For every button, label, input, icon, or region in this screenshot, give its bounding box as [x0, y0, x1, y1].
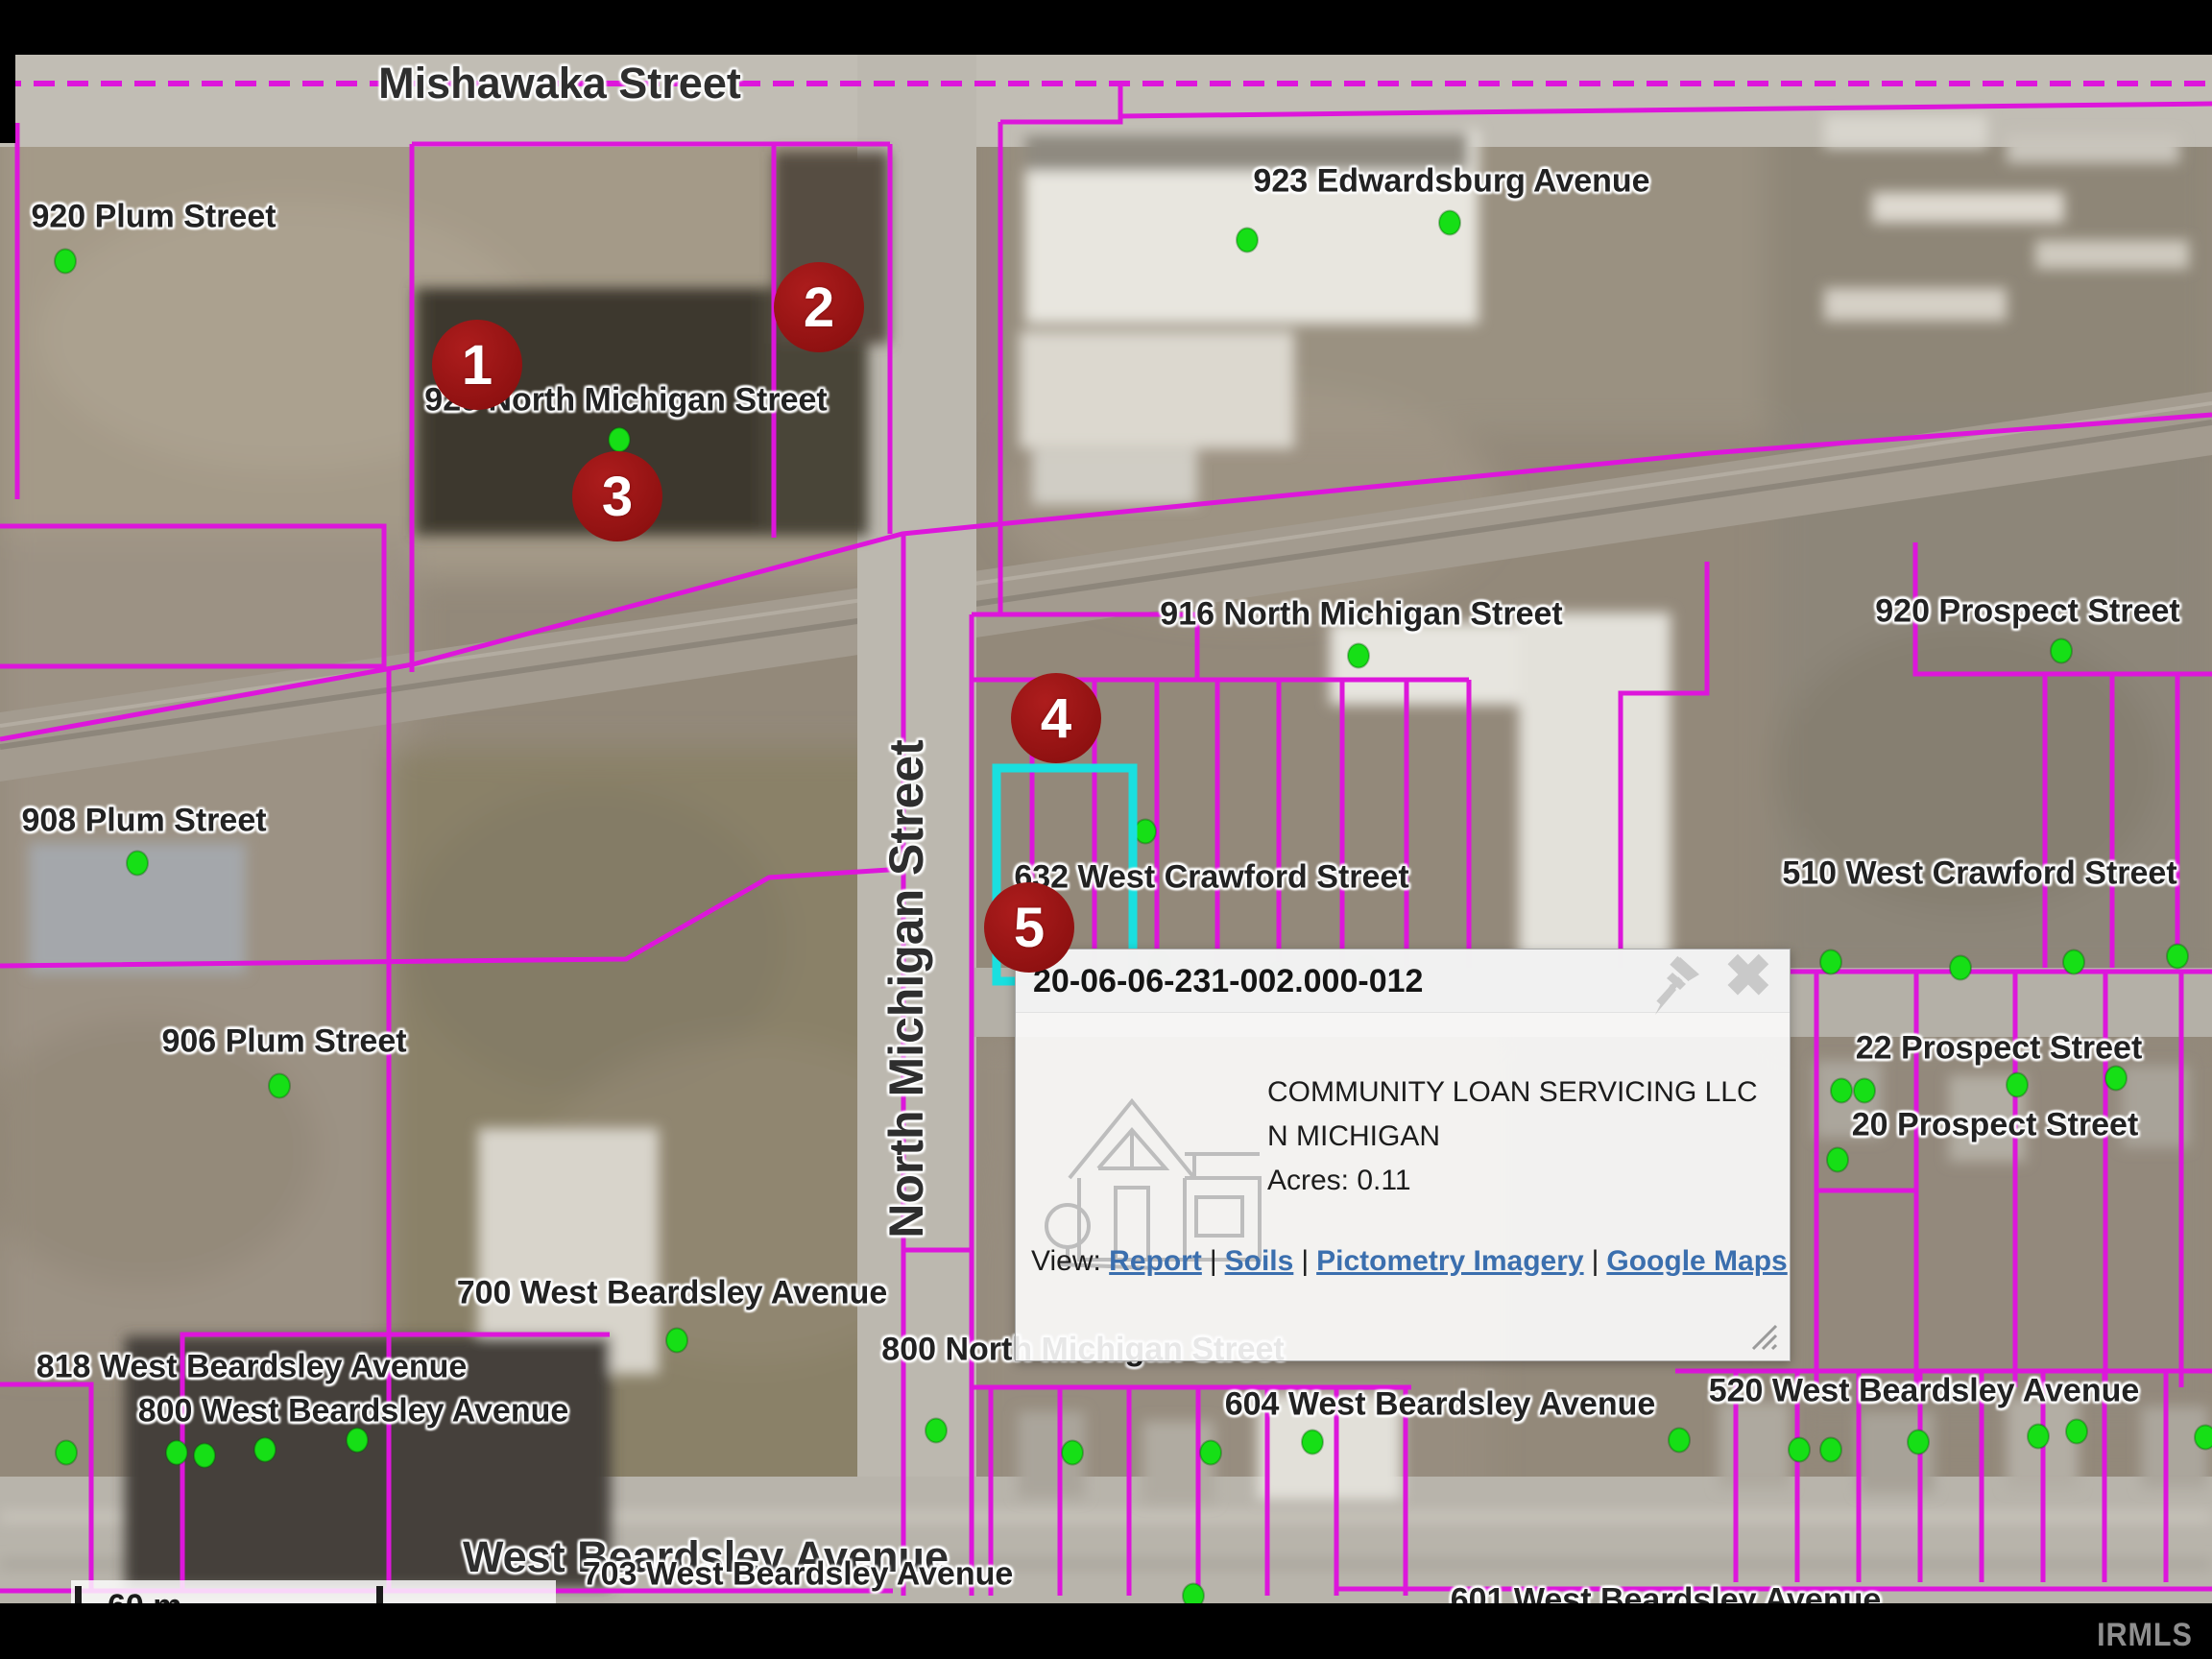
popup-link-pictometry-imagery[interactable]: Pictometry Imagery — [1316, 1245, 1583, 1277]
map-marker-5[interactable]: 5 — [984, 882, 1074, 973]
parcel-point — [1789, 1438, 1810, 1462]
parcel-point — [1348, 644, 1369, 668]
parcel-point — [254, 1438, 276, 1462]
link-separator: | — [1293, 1245, 1316, 1277]
bottom-letterbox-bar — [0, 1603, 2212, 1659]
parcel-point — [269, 1074, 290, 1098]
parcel-point — [1831, 1079, 1852, 1103]
aerial-map-canvas[interactable] — [0, 0, 2212, 1659]
parcel-point — [1439, 211, 1460, 235]
parcel-point — [666, 1329, 687, 1353]
popup-link-google-maps[interactable]: Google Maps — [1606, 1245, 1787, 1277]
top-letterbox-bar — [0, 0, 2212, 55]
parcel-address: N MICHIGAN — [1267, 1115, 1758, 1159]
parcel-point — [1200, 1441, 1221, 1465]
left-letterbox-tab — [0, 55, 15, 143]
close-icon[interactable]: ✖ — [1724, 946, 1772, 1007]
map-marker-1[interactable]: 1 — [432, 320, 522, 410]
map-marker-2[interactable]: 2 — [774, 262, 864, 352]
parcel-point — [1062, 1441, 1083, 1465]
parcel-point — [1237, 228, 1258, 252]
view-label: View: — [1031, 1245, 1101, 1277]
pin-icon[interactable] — [1651, 955, 1701, 1017]
popup-link-report[interactable]: Report — [1109, 1245, 1202, 1277]
link-separator: | — [1584, 1245, 1607, 1277]
owner-name: COMMUNITY LOAN SERVICING LLC — [1267, 1070, 1758, 1115]
parcel-point — [1950, 956, 1971, 980]
parcel-point — [1908, 1431, 1929, 1455]
parcel-point — [347, 1429, 368, 1453]
parcel-details: COMMUNITY LOAN SERVICING LLC N MICHIGAN … — [1267, 1070, 1758, 1203]
parcel-point — [194, 1444, 215, 1468]
parcel-point — [2051, 639, 2072, 663]
popup-links-row: View: Report|Soils|Pictometry Imagery|Go… — [1031, 1245, 1788, 1278]
parcel-id-title: 20-06-06-231-002.000-012 — [1033, 950, 1423, 1013]
popup-header: 20-06-06-231-002.000-012 ✖ — [1016, 950, 1790, 1013]
parcel-point — [166, 1441, 187, 1465]
parcel-point — [56, 1441, 77, 1465]
parcel-point — [1827, 1148, 1848, 1172]
parcel-info-popup: 20-06-06-231-002.000-012 ✖ — [1015, 949, 1791, 1361]
map-marker-3[interactable]: 3 — [572, 451, 662, 541]
parcel-point — [2195, 1426, 2212, 1450]
map-viewport[interactable]: Mishawaka StreetWest Beardsley AvenueNor… — [0, 0, 2212, 1659]
parcel-acres: Acres: 0.11 — [1267, 1159, 1758, 1203]
link-separator: | — [1202, 1245, 1225, 1277]
parcel-point — [2066, 1420, 2087, 1444]
parcel-point — [1820, 950, 1841, 974]
irmls-watermark: IRMLS — [2097, 1617, 2193, 1654]
parcel-point — [2105, 1067, 2127, 1091]
parcel-point — [2007, 1073, 2028, 1097]
parcel-point — [1854, 1079, 1875, 1103]
parcel-point — [1135, 820, 1156, 844]
parcel-point — [1302, 1431, 1323, 1455]
parcel-point — [2063, 950, 2084, 974]
map-marker-4[interactable]: 4 — [1011, 673, 1101, 763]
parcel-point — [55, 250, 76, 274]
parcel-point — [127, 852, 148, 876]
parcel-point — [1669, 1429, 1690, 1453]
parcel-point — [2167, 945, 2188, 969]
resize-handle-icon[interactable] — [1747, 1320, 1780, 1353]
house-icon — [1041, 1063, 1273, 1272]
parcel-point — [926, 1419, 947, 1443]
popup-link-soils[interactable]: Soils — [1225, 1245, 1294, 1277]
parcel-point — [609, 428, 630, 452]
parcel-point — [1820, 1438, 1841, 1462]
parcel-point — [2028, 1425, 2049, 1449]
